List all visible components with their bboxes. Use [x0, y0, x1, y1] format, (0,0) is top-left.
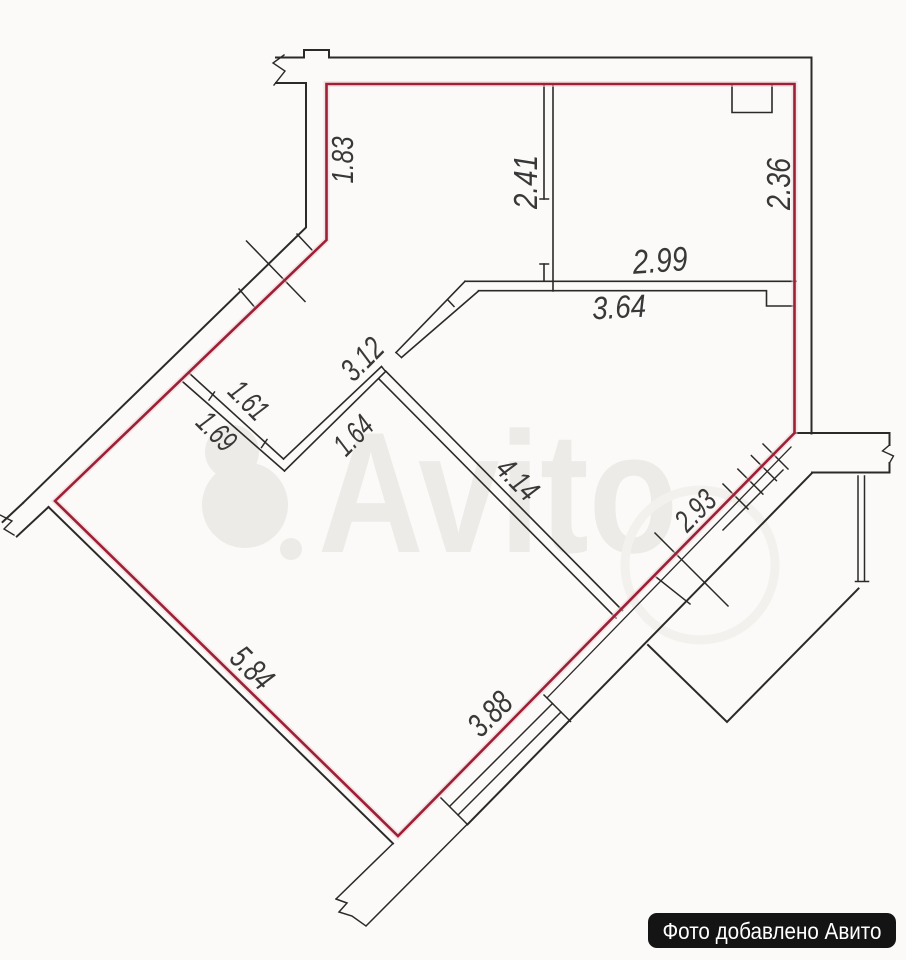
svg-text:2.41: 2.41	[507, 155, 544, 210]
svg-text:2.36: 2.36	[760, 157, 797, 210]
svg-text:1.83: 1.83	[325, 137, 360, 184]
svg-text:2.99: 2.99	[630, 240, 688, 282]
svg-text:Фото добавлено Авито: Фото добавлено Авито	[663, 918, 882, 944]
svg-text:3.64: 3.64	[591, 288, 647, 327]
